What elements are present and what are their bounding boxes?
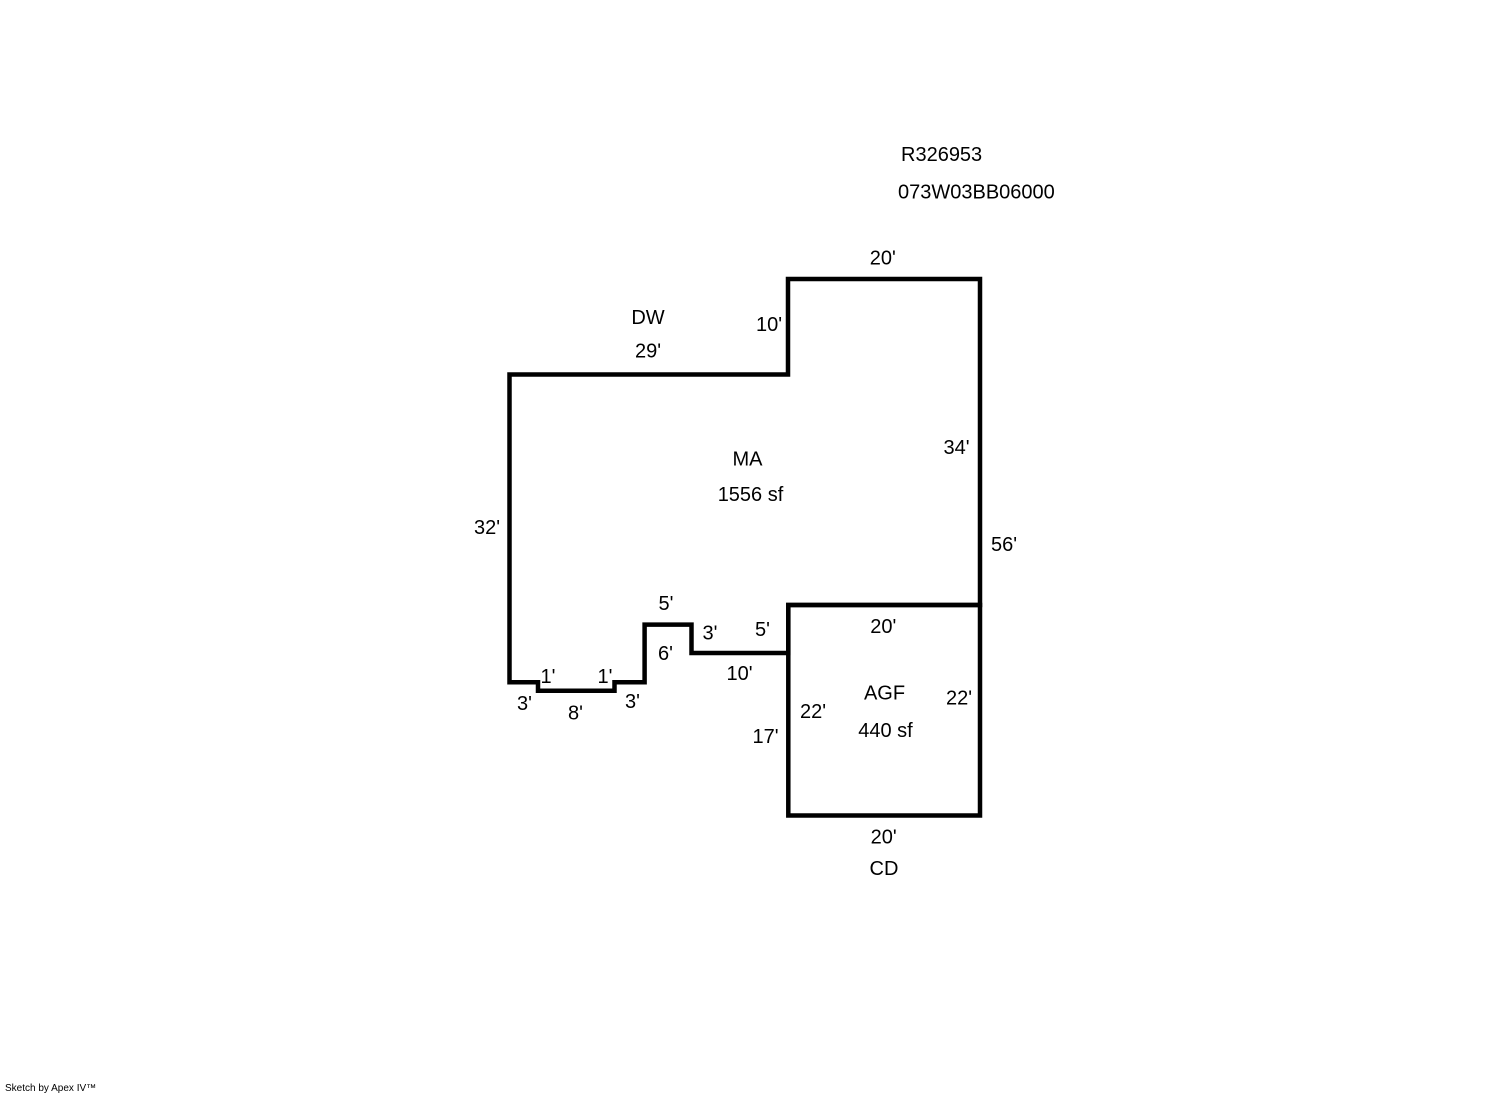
svg-text:22': 22' bbox=[946, 688, 972, 710]
svg-text:20': 20' bbox=[871, 827, 897, 849]
svg-text:R326953: R326953 bbox=[901, 144, 982, 166]
svg-text:22': 22' bbox=[800, 701, 826, 723]
svg-text:56': 56' bbox=[991, 534, 1017, 556]
svg-text:073W03BB06000: 073W03BB06000 bbox=[898, 182, 1055, 204]
svg-text:440 sf: 440 sf bbox=[858, 720, 913, 742]
svg-text:1': 1' bbox=[541, 666, 556, 688]
svg-text:Sketch by Apex IV™: Sketch by Apex IV™ bbox=[5, 1083, 96, 1094]
svg-text:20': 20' bbox=[870, 616, 896, 638]
svg-text:34': 34' bbox=[943, 437, 969, 459]
svg-text:3': 3' bbox=[703, 623, 718, 645]
svg-text:AGF: AGF bbox=[864, 683, 905, 705]
svg-text:DW: DW bbox=[631, 307, 664, 329]
svg-text:MA: MA bbox=[733, 449, 764, 471]
svg-text:10': 10' bbox=[756, 314, 782, 336]
svg-text:20': 20' bbox=[870, 248, 896, 270]
svg-text:1': 1' bbox=[598, 666, 613, 688]
svg-text:5': 5' bbox=[659, 593, 674, 615]
svg-text:CD: CD bbox=[870, 858, 899, 880]
svg-text:8': 8' bbox=[568, 703, 583, 725]
svg-text:10': 10' bbox=[726, 663, 752, 685]
svg-text:32': 32' bbox=[474, 517, 500, 539]
svg-text:5': 5' bbox=[755, 619, 770, 641]
svg-text:1556 sf: 1556 sf bbox=[718, 484, 784, 506]
svg-text:3': 3' bbox=[625, 691, 640, 713]
svg-text:6': 6' bbox=[658, 643, 673, 665]
svg-text:17': 17' bbox=[752, 726, 778, 748]
svg-text:3': 3' bbox=[517, 693, 532, 715]
svg-text:29': 29' bbox=[635, 341, 661, 363]
